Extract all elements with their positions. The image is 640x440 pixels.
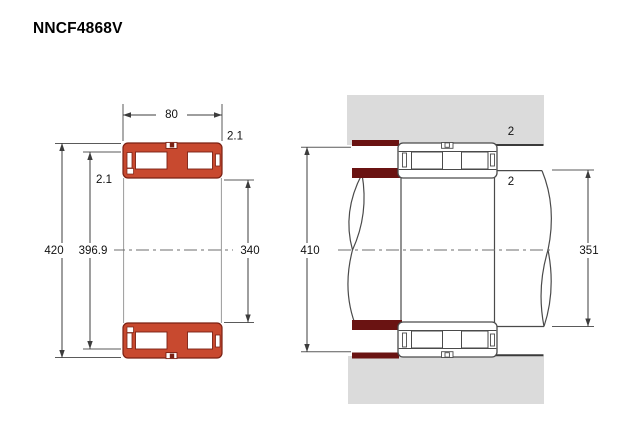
dim-label-raceway-diameter: 396.9 [79,245,108,257]
dim-label-housing-abutment-diameter: 410 [300,245,319,257]
bearing-datasheet-drawing: NNCF4868V [0,0,640,440]
bearing-outline-bottom [398,322,497,358]
dim-label-bore-diameter: 340 [240,245,259,257]
bearing-cross-section-top [123,142,222,178]
extension-lines [55,104,254,358]
mounting-arrangement-view: 2 2 410 351 [290,85,630,415]
dim-label-outer-diameter: 420 [44,245,63,257]
dim-label-inner-chamfer: 2.1 [96,174,112,186]
shaft [348,171,551,329]
housing-block-bottom [348,356,544,404]
cross-section-view: 80 2.1 2.1 420 396.9 340 [30,85,280,380]
dim-label-shaft-abutment-diameter: 351 [579,245,598,257]
abutment-rings [352,140,402,359]
label-shaft-fillet-radius: 2 [508,176,514,188]
bearing-cross-section-bottom [123,323,222,359]
dim-label-width: 80 [165,109,178,121]
page-title: NNCF4868V [33,20,123,38]
label-housing-fillet-radius: 2 [508,126,514,138]
dim-label-outer-chamfer: 2.1 [227,131,243,143]
housing-block-top [347,95,544,145]
bearing-outline-top [398,143,497,179]
